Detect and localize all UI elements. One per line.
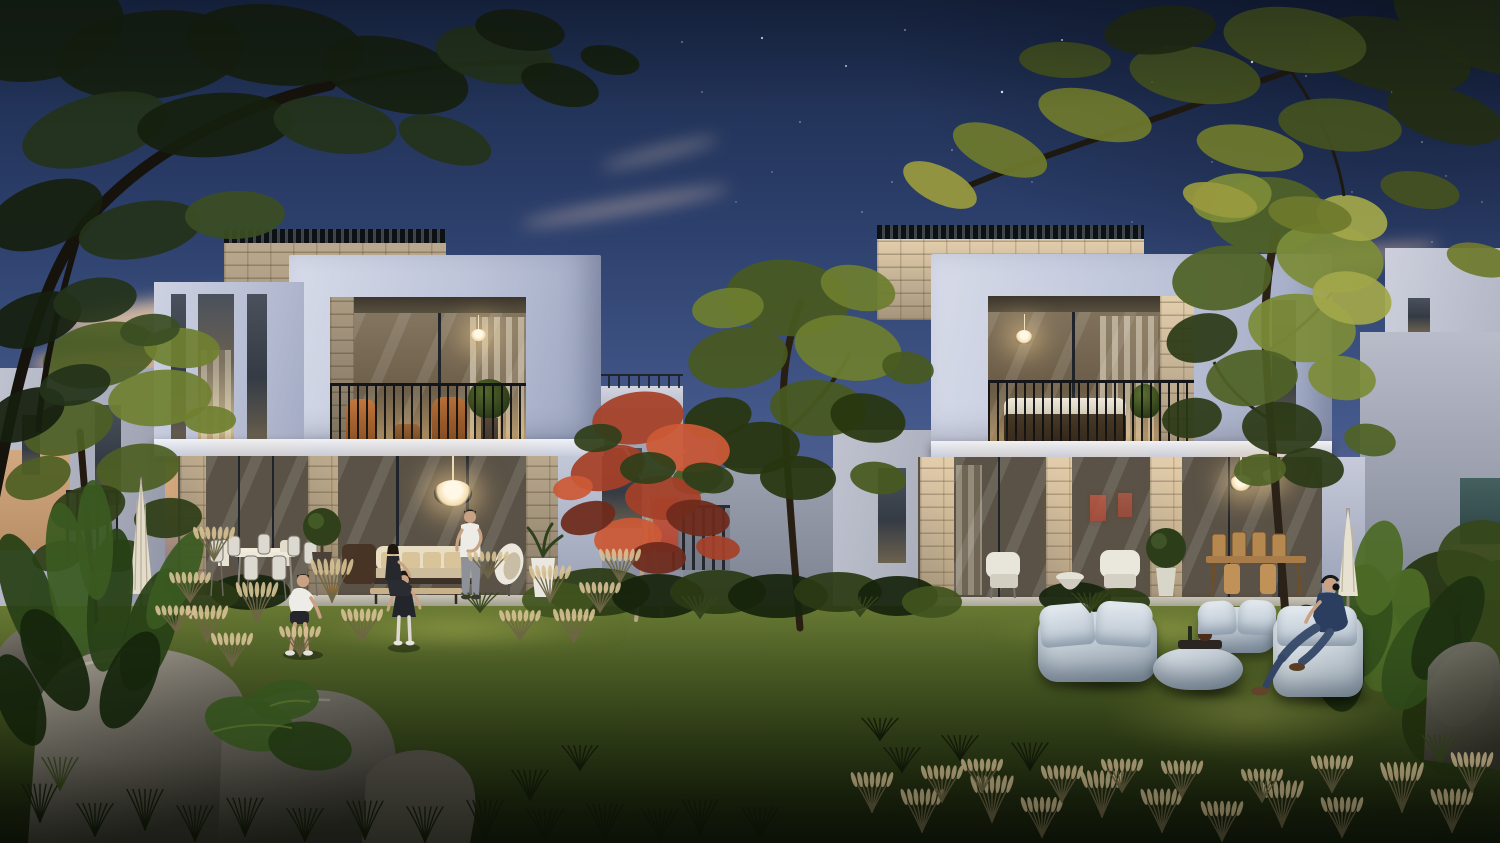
bean-bag-back-pillow [1277, 606, 1357, 646]
bean-bag-back-pillow [1038, 602, 1095, 649]
bean-bag-back-pillow [1197, 600, 1237, 637]
bean-bag-back-pillow [1237, 599, 1277, 636]
drinks-tray [1178, 640, 1222, 649]
bean-bag-back-pillow [1095, 600, 1154, 648]
outdoor-lounge [0, 0, 1500, 843]
twilight-villas-render [0, 0, 1500, 843]
bean-bag-chair-right [1273, 615, 1363, 697]
ottoman [1153, 648, 1243, 690]
bottle [1188, 626, 1192, 641]
bean-bag-chair-left [1038, 612, 1157, 682]
